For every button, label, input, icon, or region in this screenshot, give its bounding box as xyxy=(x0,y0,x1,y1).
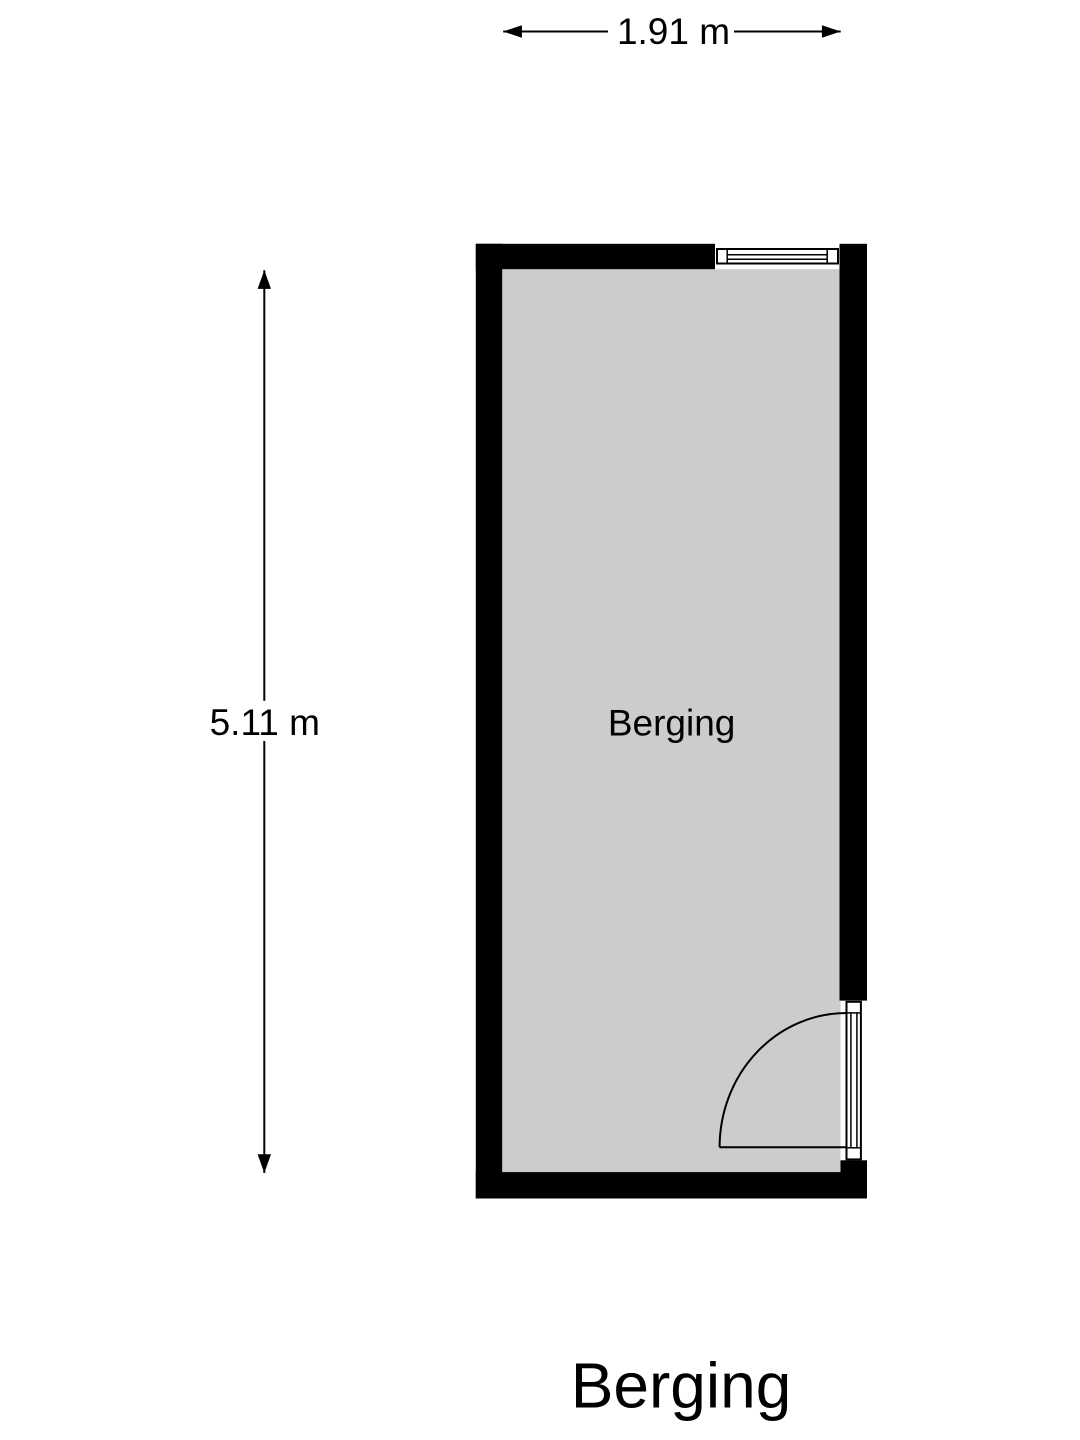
svg-text:5.11 m: 5.11 m xyxy=(210,702,320,743)
svg-text:1.91 m: 1.91 m xyxy=(617,11,730,52)
svg-text:Berging: Berging xyxy=(608,702,736,743)
svg-text:Berging: Berging xyxy=(571,1350,792,1422)
